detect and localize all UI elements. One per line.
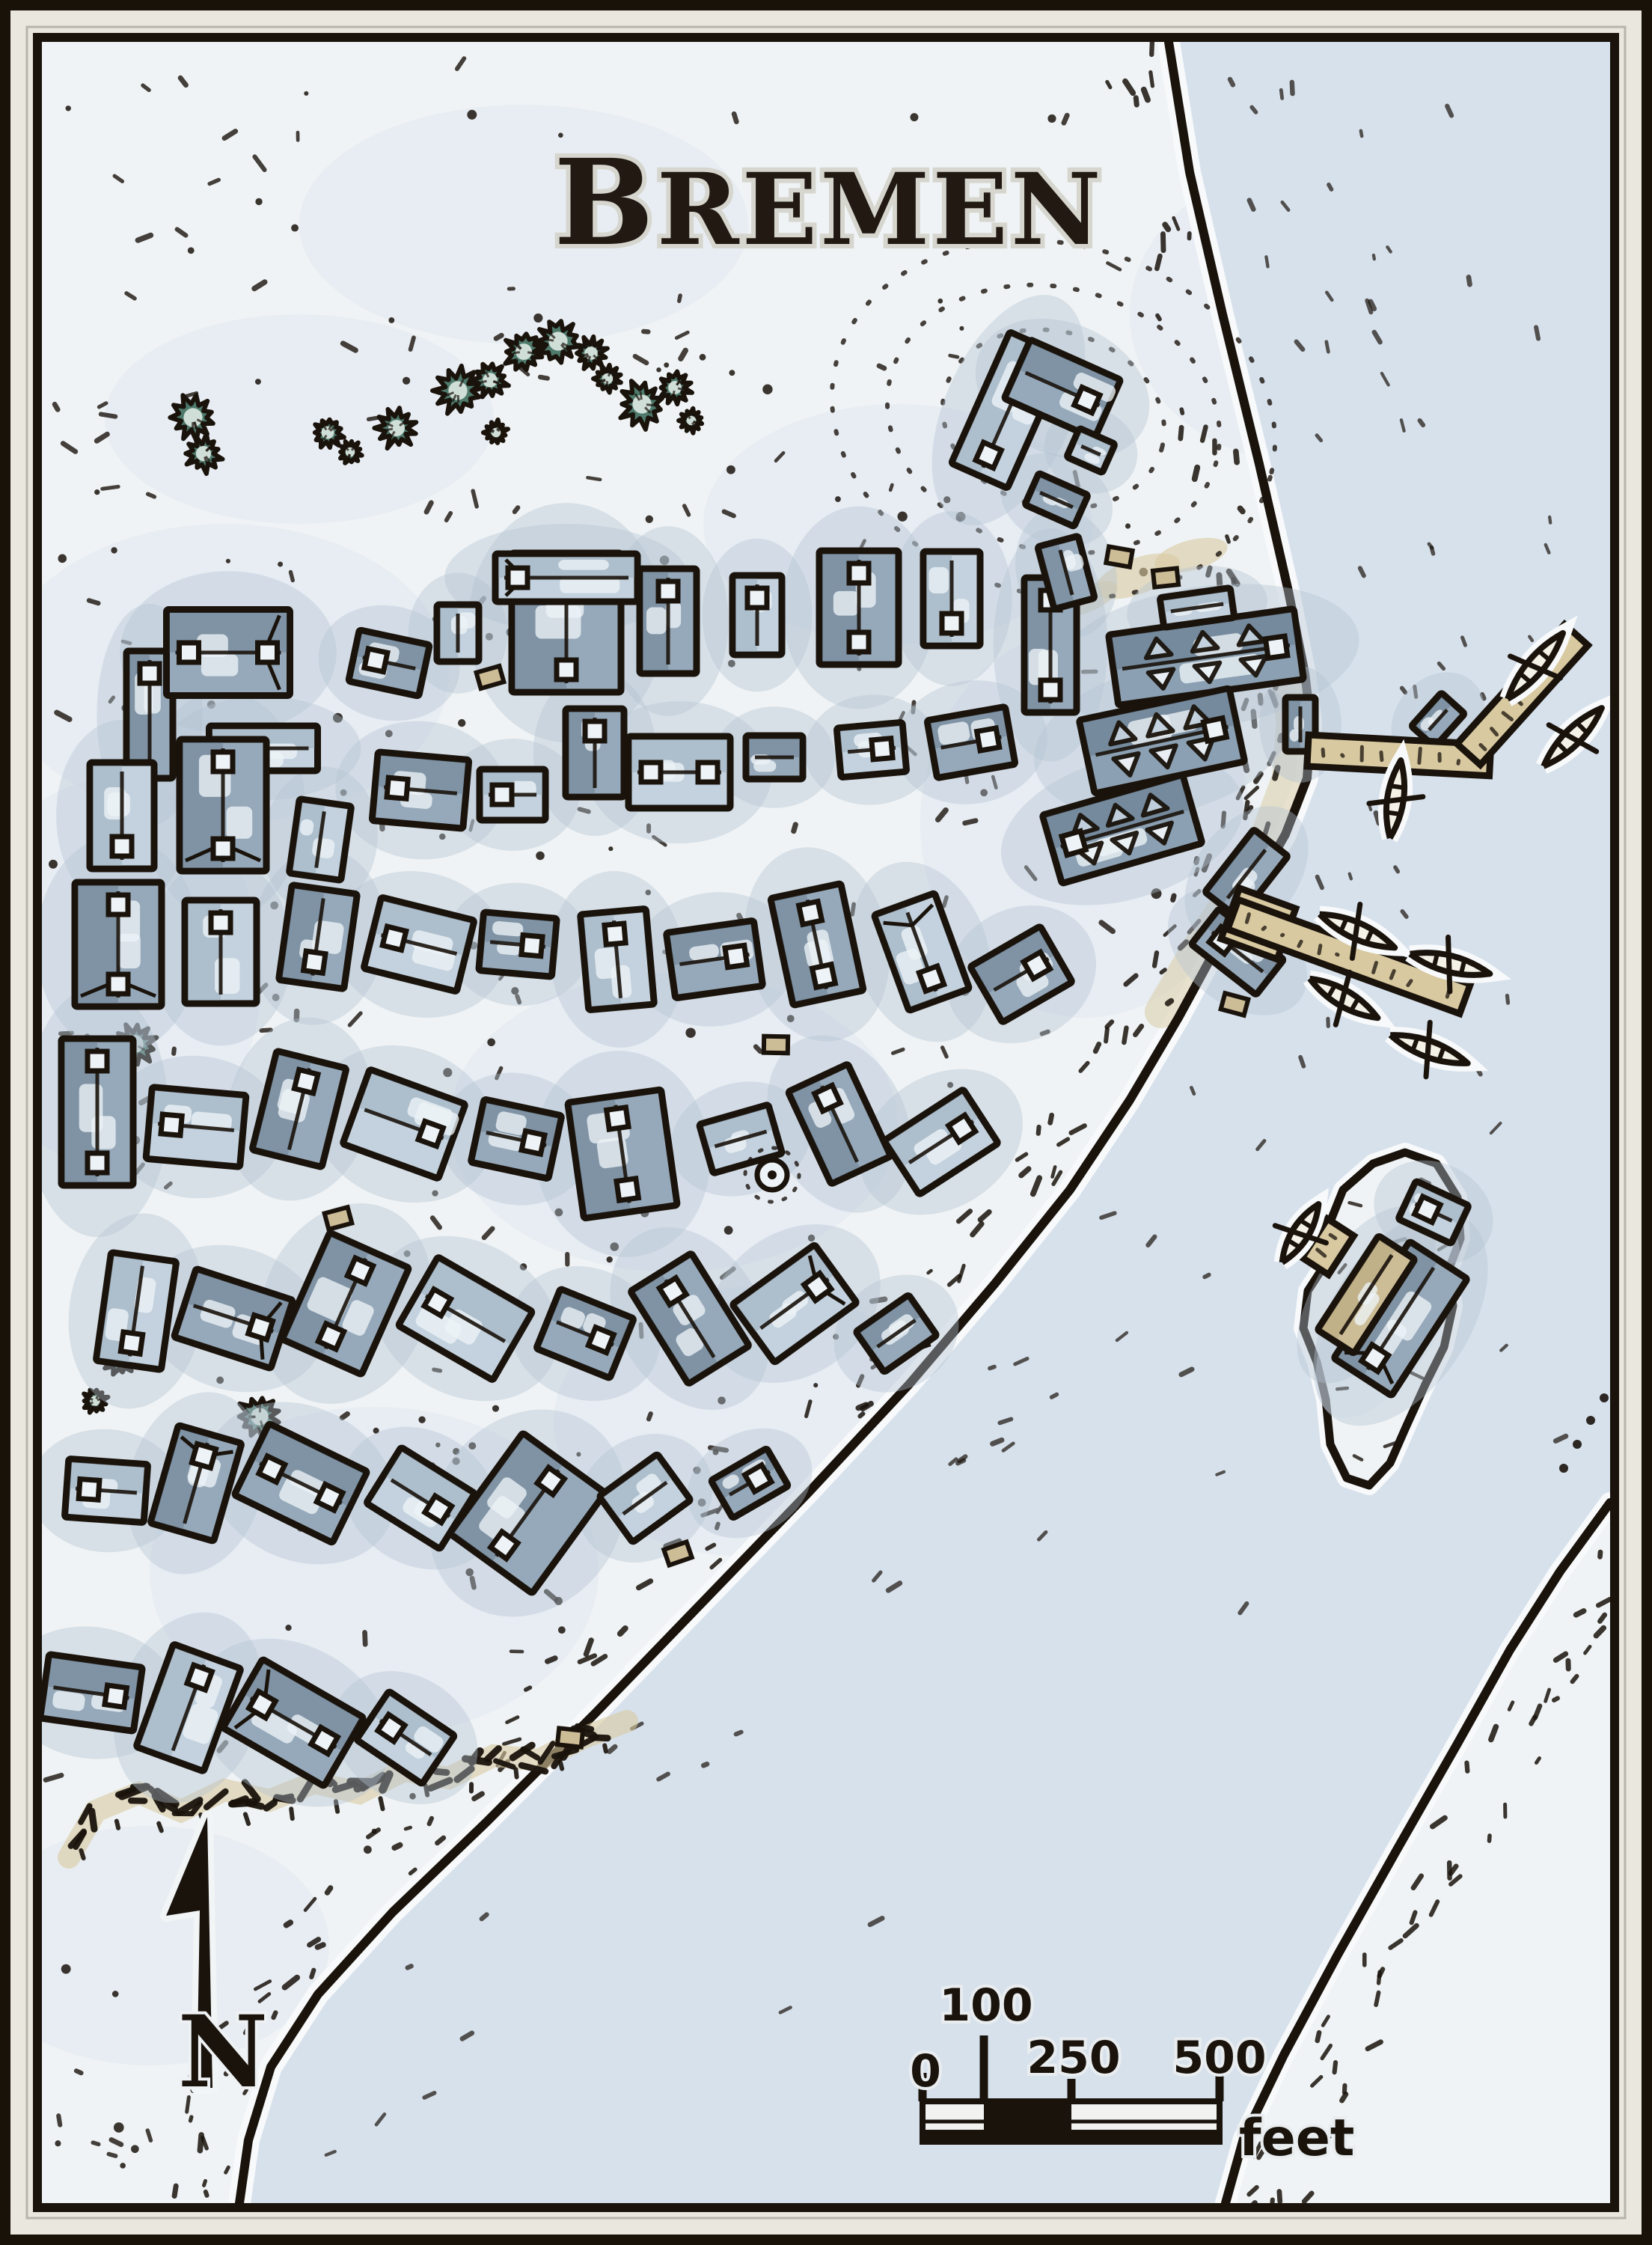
rock-mark [108,2154,115,2156]
building [732,575,782,655]
rock-mark [1318,2032,1319,2041]
rock-mark [1529,637,1532,641]
building [146,1087,246,1167]
rock-mark [1466,1763,1467,1771]
building [836,722,906,777]
rock-mark [649,1414,651,1419]
scale-label-500: 500 [1172,2032,1266,2084]
building [64,1459,147,1522]
building [819,551,899,665]
rock-mark [1181,409,1182,413]
scale-unit-label: feet [1239,2109,1354,2168]
building [279,885,358,989]
building [289,799,351,881]
north-label: N [178,1994,269,2110]
shed [477,666,504,688]
rock-mark [496,335,501,338]
rock-mark [1202,427,1205,441]
rock-mark [406,1827,411,1829]
rock-mark [394,1845,400,1848]
rock-mark [515,507,518,511]
rock-mark [55,404,58,409]
building [640,569,697,673]
rock-mark [1173,896,1174,899]
building [479,912,557,977]
rock-mark [1052,1394,1057,1397]
rock-mark [1165,224,1168,229]
rock-mark [1469,277,1470,284]
rock-mark [1168,1001,1172,1004]
rock-mark [605,1745,606,1751]
rock-mark [1154,953,1157,965]
shed [325,1207,352,1230]
rock-mark [756,1047,760,1051]
rock-mark [206,2192,207,2196]
rock-mark [117,1821,118,1827]
rock-mark [548,1658,555,1661]
building [180,739,266,871]
rock-mark [1376,1993,1378,2005]
rock-mark [226,2167,229,2172]
rock-mark [311,1970,313,1977]
building [372,752,469,828]
rock-mark [92,1811,94,1829]
building [349,630,429,696]
building [628,736,730,808]
rock-mark [261,1030,271,1030]
rock-mark [1329,185,1332,189]
rock-mark [965,821,976,823]
rock-mark [327,1888,330,1893]
rock-mark [1507,995,1508,1003]
rock-mark [76,2071,81,2073]
rock-mark [1279,2192,1280,2202]
rock-mark [1429,544,1432,548]
building [61,1039,133,1185]
rock-mark [1292,82,1293,94]
rock-mark [620,1628,625,1634]
rock-mark [1576,1611,1583,1615]
rock-mark [736,1732,741,1735]
shed [1106,546,1132,566]
rock-mark [1151,72,1153,86]
rock-mark [1205,1274,1209,1277]
rock-mark [174,1049,174,1054]
building [167,610,290,696]
rock-mark [266,1803,274,1808]
building [495,554,637,602]
building [437,605,479,662]
rock-mark [1191,1087,1194,1093]
rock-mark [1227,537,1229,542]
rock-mark [274,2013,276,2018]
rock-mark [1374,255,1374,259]
rock-mark [1554,1698,1558,1700]
rock-mark [1161,970,1165,973]
rock-mark [879,366,884,368]
building [40,1655,143,1732]
rock-mark [1236,451,1237,462]
building [923,552,980,646]
rock-mark [1489,1836,1490,1841]
rock-mark [191,2117,192,2121]
rock-mark [1342,2094,1346,2100]
rock-mark [1395,867,1398,872]
rock-mark [1600,1552,1600,1557]
rock-mark [245,1814,248,1824]
rock-mark [593,1738,608,1738]
rock-mark [159,1824,162,1831]
building [666,920,762,998]
rock-mark [1195,468,1197,479]
rock-mark [317,1945,323,1947]
rock-mark [794,825,796,831]
rock-mark [587,477,600,480]
rock-mark [1549,517,1550,523]
rock-mark [1402,688,1406,693]
rock-mark [560,1762,562,1769]
building [927,706,1015,778]
rock-mark [1240,508,1243,511]
rock-mark [1335,2062,1336,2072]
rock-mark [516,1769,516,1777]
rock-mark [1531,1717,1535,1724]
rock-mark [1038,1127,1039,1134]
rock-mark [290,572,293,580]
shed [557,1728,583,1747]
rock-mark [1050,1115,1052,1122]
rock-mark [58,2116,60,2125]
rock-mark [993,1440,1002,1444]
rock-mark [1536,327,1538,338]
rock-mark [1420,421,1423,425]
rock-mark [89,600,98,603]
tree [340,442,362,463]
rock-mark [540,377,548,379]
rock-mark [101,414,115,416]
scale-label-250: 250 [1027,2032,1120,2084]
rock-mark [950,355,958,357]
rock-mark [429,1818,432,1824]
rock-mark [174,2186,176,2196]
rock-mark [990,1366,994,1368]
building [746,736,803,779]
bremen-map-canvas: BREMEN N 0 100 250 500 feet [0,0,1652,2245]
rock-mark [1344,2086,1345,2092]
rock-mark [1136,98,1136,105]
rock-mark [610,1747,615,1751]
shed [1221,993,1249,1015]
rock-mark [1230,79,1233,85]
rock-mark [482,1914,487,1919]
rock-mark [1350,874,1351,879]
map-title: BREMEN [554,134,1104,272]
rock-mark [1266,257,1267,266]
rock-mark [734,114,736,121]
rock-mark [1064,115,1067,123]
building [90,763,154,869]
rock-mark [929,1271,931,1273]
building [471,1099,562,1179]
building [75,882,162,1007]
rock-mark [526,1687,530,1690]
rock-mark [1281,90,1282,98]
rock-mark [1181,427,1181,439]
rock-mark [81,1851,83,1858]
rock-mark [93,2142,98,2144]
building [566,709,624,797]
rock-mark [342,1414,347,1417]
building [185,900,257,1004]
shed [764,1036,788,1054]
building [1160,588,1235,628]
rock-mark [1379,1972,1380,1983]
rock-mark [1157,316,1160,320]
map-content [0,37,1652,2214]
rock-mark [1124,1028,1126,1042]
rock-mark [204,2181,206,2185]
shed [1153,568,1178,587]
rock-mark [103,486,118,489]
rock-mark [287,1922,290,1925]
rock-mark [1536,1759,1539,1763]
scale-label-0: 0 [910,2045,941,2098]
building [480,769,545,820]
rock-mark [1163,234,1163,251]
rock-mark [860,1414,863,1416]
rock-mark [408,1966,412,1967]
rock-mark [1095,1044,1098,1051]
rock-mark [365,1632,366,1644]
rock-mark [703,1764,707,1765]
building [96,1253,176,1370]
scale-label-100: 100 [939,1979,1032,2032]
rock-mark [380,1798,382,1809]
rock-mark [148,494,155,497]
rock-mark [1144,90,1148,100]
rock-mark [1300,1057,1303,1066]
rock-mark [1327,342,1329,352]
rock-mark [291,1809,293,1818]
rock-mark [890,485,892,490]
building [568,1090,677,1218]
rock-mark [1361,131,1362,136]
rock-mark [679,296,680,301]
rock-mark [1157,256,1160,269]
building [581,908,655,1010]
rock-mark [1106,1029,1107,1041]
